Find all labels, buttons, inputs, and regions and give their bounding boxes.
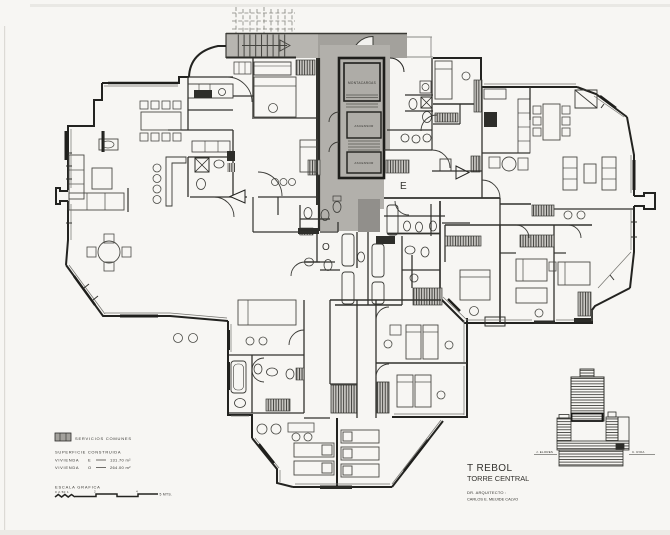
svg-text:DR. ARQUITECTO :: DR. ARQUITECTO : xyxy=(467,490,506,495)
svg-text:VIVIENDA: VIVIENDA xyxy=(55,465,79,470)
svg-text:TORRE CENTRAL: TORRE CENTRAL xyxy=(467,474,529,483)
svg-text:O: O xyxy=(322,242,331,253)
svg-text:ASCENSOR: ASCENSOR xyxy=(354,124,374,128)
svg-text:CARLOS E. MEIJIDE CALVO: CARLOS E. MEIJIDE CALVO xyxy=(467,497,518,502)
svg-text:T REBOL: T REBOL xyxy=(467,463,512,474)
svg-text:C. RIOA: C. RIOA xyxy=(632,450,645,454)
svg-text:264.00 m²: 264.00 m² xyxy=(110,465,131,470)
svg-text:SUPERFICIE CONSTRUIDA: SUPERFICIE CONSTRUIDA xyxy=(55,450,121,455)
svg-text:E: E xyxy=(400,181,408,192)
svg-text:MONTACARGAS: MONTACARGAS xyxy=(348,81,376,85)
svg-text:5 MTS.: 5 MTS. xyxy=(160,493,173,497)
svg-text:VIVIENDA: VIVIENDA xyxy=(55,458,79,463)
svg-text:SERVICIOS COMUNES: SERVICIOS COMUNES xyxy=(75,436,132,441)
svg-text:E: E xyxy=(88,458,91,463)
svg-text:131.70 m²: 131.70 m² xyxy=(110,458,131,463)
svg-text:ASCENSOR: ASCENSOR xyxy=(354,161,374,165)
svg-text:J. ELORES: J. ELORES xyxy=(536,450,553,454)
svg-text:0 2.50 1: 0 2.50 1 xyxy=(55,490,69,494)
svg-text:O: O xyxy=(88,465,91,470)
